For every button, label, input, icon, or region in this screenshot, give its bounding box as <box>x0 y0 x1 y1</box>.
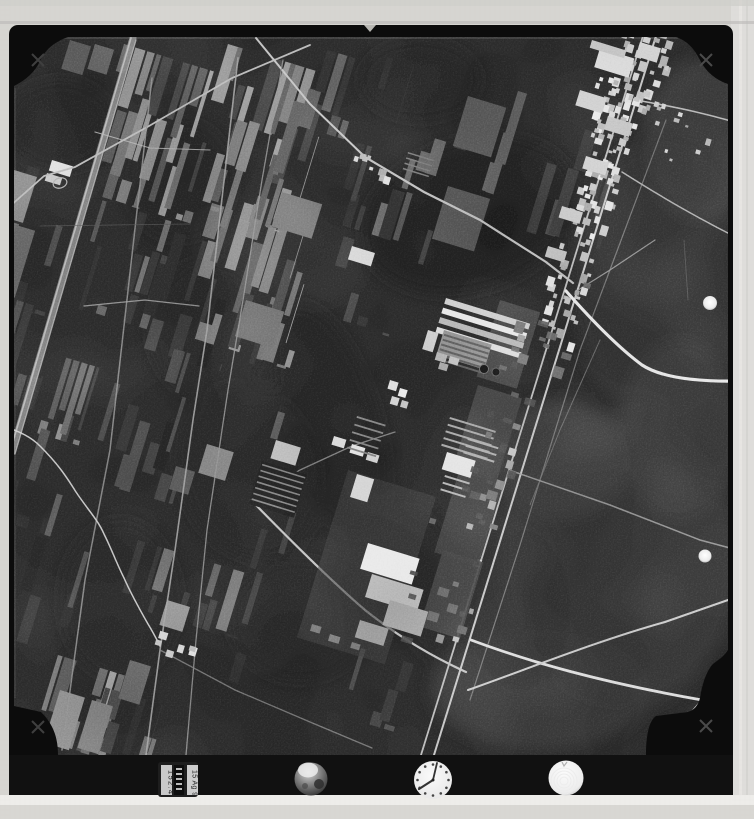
svg-text:15 Ag 9: 15 Ag 9 <box>191 770 198 796</box>
svg-text:152.4: 152.4 <box>167 770 176 794</box>
